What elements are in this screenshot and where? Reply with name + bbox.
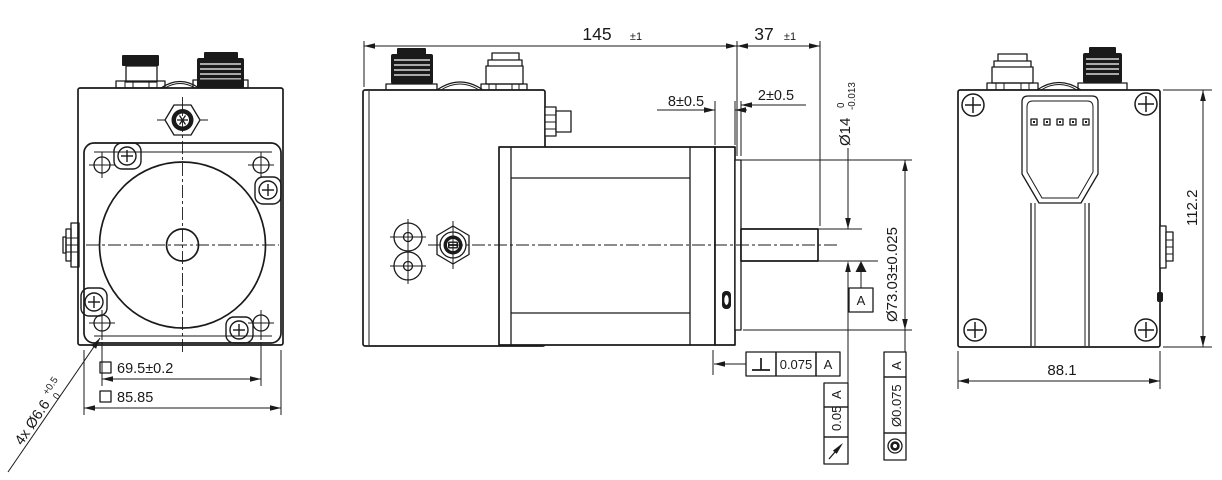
svg-text:88.1: 88.1 [1047, 362, 1076, 379]
svg-text:A: A [824, 357, 833, 372]
motor-body-outline [499, 147, 715, 345]
svg-text:Ø73.03±0.025: Ø73.03±0.025 [884, 227, 901, 322]
datum-a-label: A [857, 293, 866, 308]
svg-text:±1: ±1 [630, 31, 642, 43]
svg-text:-0.013: -0.013 [847, 82, 858, 110]
m12-connector-icon [987, 54, 1038, 90]
svg-text:2±0.5: 2±0.5 [758, 88, 794, 104]
runout-icon [829, 443, 843, 459]
svg-text:±1: ±1 [784, 31, 796, 43]
side-terminal-icon [63, 223, 79, 267]
dim-shaft-extension: 37 ±1 [737, 24, 820, 226]
side-connector-icon [545, 107, 571, 136]
svg-text:8±0.5: 8±0.5 [668, 94, 704, 110]
square-symbol-icon [100, 391, 111, 402]
dim-mounting-holes: 4x Ø6.6 +0.5 0 [8, 338, 100, 472]
motor-dimension-drawing: 69.5±0.2 85.85 4x Ø6.6 +0.5 0 [0, 0, 1222, 480]
svg-text:0: 0 [51, 391, 63, 402]
side-view: 145 ±1 37 ±1 8±0.5 2±0.5 [363, 24, 912, 464]
keyway-plug-icon [722, 291, 731, 309]
m12-knurled-connector-icon [1078, 47, 1127, 90]
m12-connector-icon [481, 53, 527, 90]
svg-text:37: 37 [754, 24, 773, 44]
svg-text:112.2: 112.2 [1184, 190, 1201, 226]
svg-text:0: 0 [836, 102, 847, 108]
svg-text:85.85: 85.85 [117, 390, 153, 406]
svg-text:Ø0.075: Ø0.075 [889, 384, 904, 427]
dome-cover-icon [437, 82, 483, 90]
dim-shaft-diameter: Ø14 0 -0.013 [818, 82, 878, 261]
back-view: 112.2 88.1 [958, 47, 1212, 389]
m12-connector-icon [116, 55, 165, 88]
screw-icon [81, 143, 281, 343]
datum-a: A [849, 261, 873, 312]
dim-flange-square: 85.85 [84, 350, 281, 415]
front-view: 69.5±0.2 85.85 4x Ø6.6 +0.5 0 [8, 52, 283, 472]
svg-text:69.5±0.2: 69.5±0.2 [117, 361, 173, 377]
m12-knurled-connector-icon [193, 52, 248, 88]
dim-bolt-circle: 69.5±0.2 [100, 342, 261, 386]
fcf-perpendicularity: 0.075 A [713, 350, 840, 376]
housing-outline [958, 90, 1160, 347]
dim-pilot-depth: 2±0.5 [741, 88, 806, 156]
svg-text:145: 145 [582, 24, 611, 44]
svg-text:4x Ø6.6: 4x Ø6.6 [12, 397, 54, 448]
flange-plate [715, 147, 735, 345]
svg-text:Ø14: Ø14 [837, 118, 854, 146]
m12-knurled-connector-icon [386, 48, 437, 90]
fcf-concentricity: A Ø0.075 [884, 330, 906, 460]
svg-text:A: A [829, 390, 844, 399]
dim-height: 112.2 [1163, 90, 1212, 347]
svg-text:0.05: 0.05 [829, 406, 844, 431]
svg-text:0.075: 0.075 [780, 357, 813, 372]
dome-cover-icon [1037, 83, 1081, 91]
concentricity-icon [888, 439, 902, 453]
dim-flange-thickness: 8±0.5 [657, 94, 747, 145]
mounting-hole [89, 152, 274, 340]
svg-text:A: A [889, 361, 904, 370]
perpendicularity-icon [752, 358, 770, 370]
dim-width: 88.1 [958, 351, 1160, 389]
drawing-canvas: 69.5±0.2 85.85 4x Ø6.6 +0.5 0 [0, 0, 1222, 480]
